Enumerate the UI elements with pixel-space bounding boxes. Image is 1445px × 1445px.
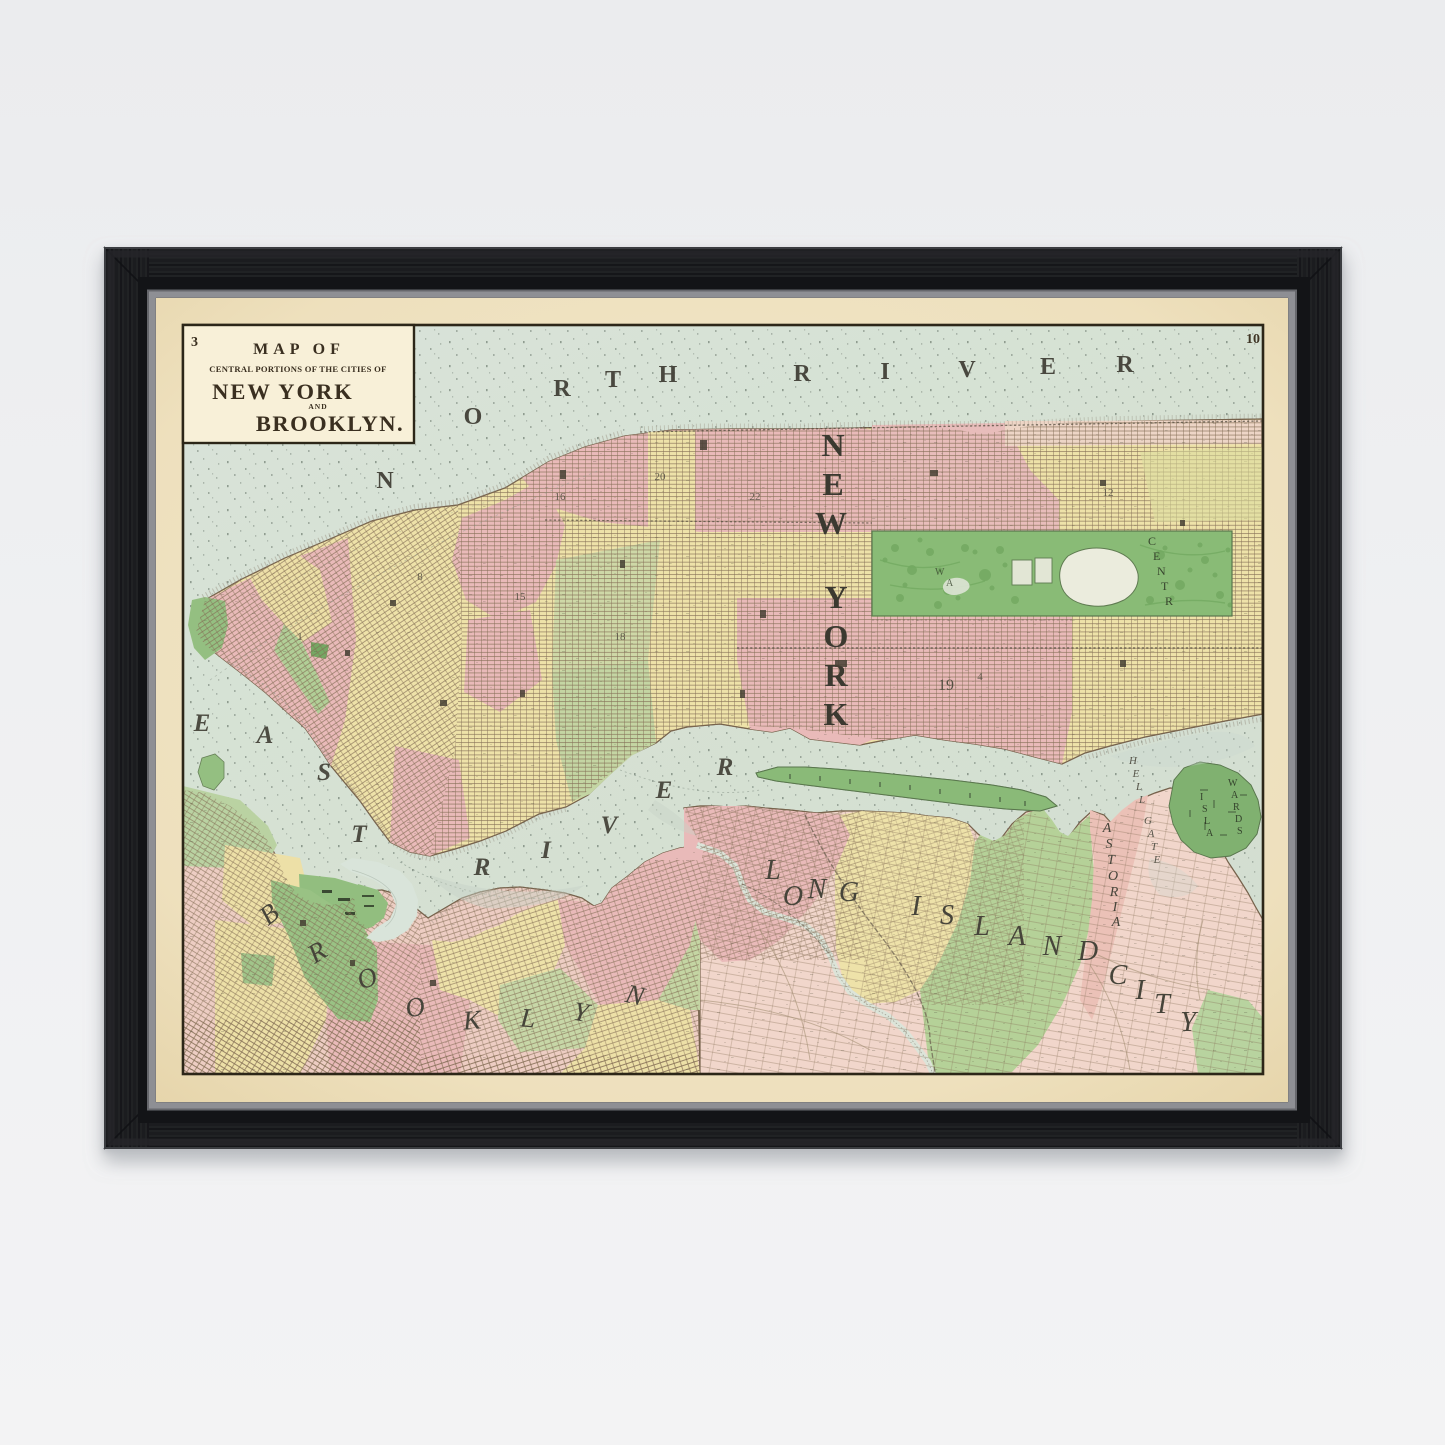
svg-text:MAP OF: MAP OF xyxy=(253,341,345,358)
svg-text:BROOKLYN.: BROOKLYN. xyxy=(256,411,404,436)
svg-text:CENTRAL PORTIONS OF THE CITIES: CENTRAL PORTIONS OF THE CITIES OF xyxy=(209,364,386,374)
svg-text:NEW YORK: NEW YORK xyxy=(212,379,354,404)
svg-text:AND: AND xyxy=(308,402,327,411)
svg-text:3: 3 xyxy=(191,335,198,350)
